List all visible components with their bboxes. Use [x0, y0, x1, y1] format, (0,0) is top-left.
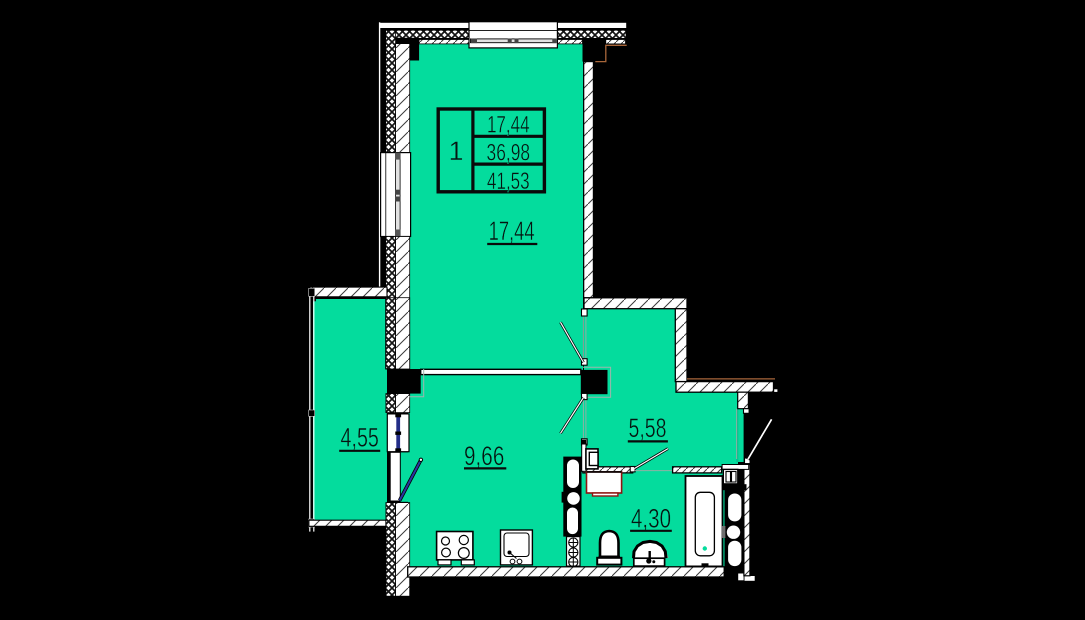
svg-text:41,53: 41,53 [487, 168, 530, 195]
svg-text:17,44: 17,44 [489, 216, 535, 246]
svg-text:17,44: 17,44 [487, 111, 530, 138]
svg-text:4,55: 4,55 [341, 423, 379, 453]
svg-text:9,66: 9,66 [464, 441, 504, 471]
svg-text:1: 1 [448, 136, 463, 166]
svg-text:5,58: 5,58 [629, 413, 667, 443]
svg-text:36,98: 36,98 [487, 140, 531, 167]
svg-text:4,30: 4,30 [631, 503, 671, 533]
